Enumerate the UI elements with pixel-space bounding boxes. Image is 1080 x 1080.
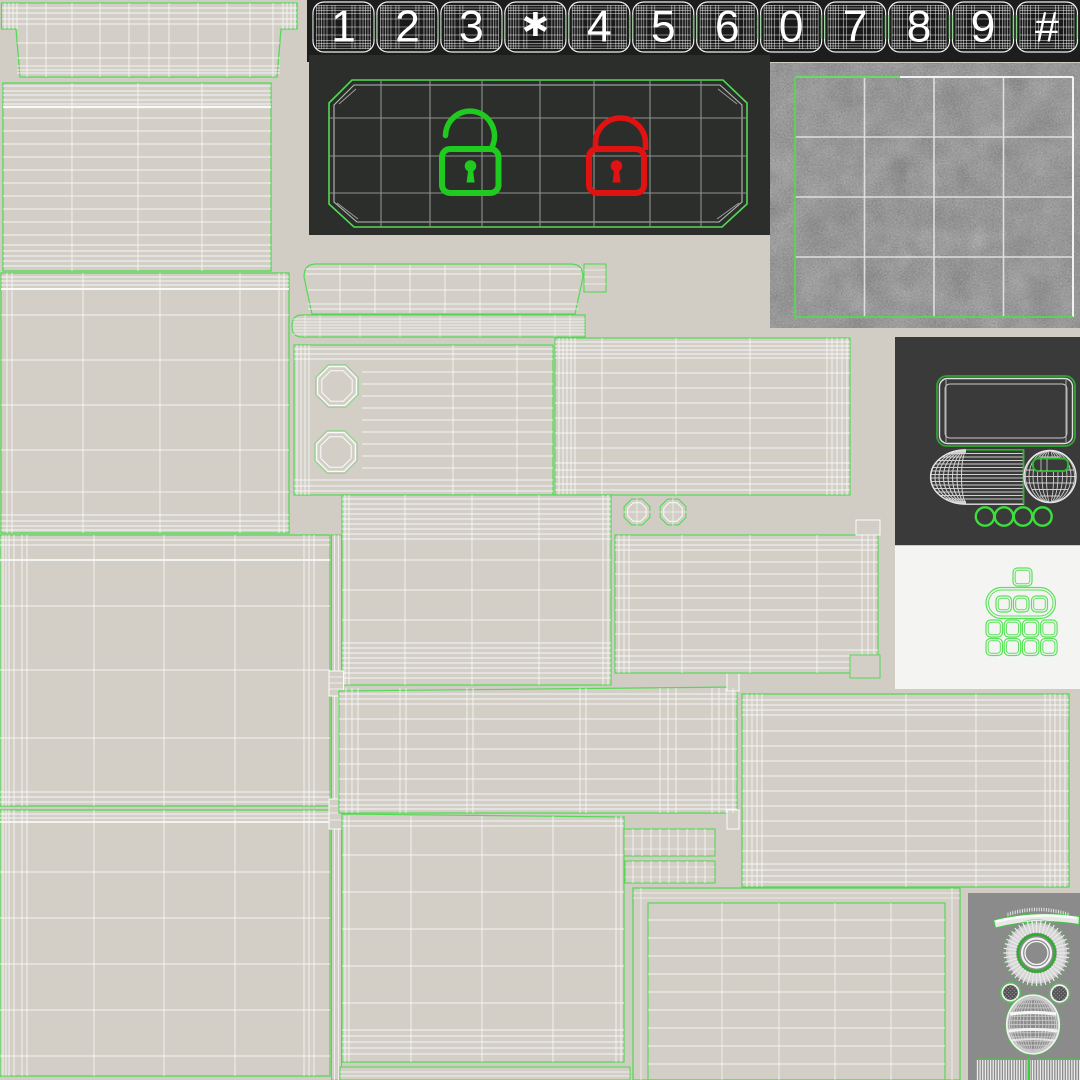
svg-text:9: 9 — [971, 3, 996, 52]
svg-text:0: 0 — [779, 3, 804, 52]
svg-text:5: 5 — [651, 3, 676, 52]
svg-text:7: 7 — [843, 3, 868, 52]
svg-text:#: # — [1035, 4, 1059, 52]
svg-text:8: 8 — [907, 3, 932, 52]
svg-text:3: 3 — [459, 3, 484, 52]
svg-text:4: 4 — [587, 3, 612, 52]
svg-text:6: 6 — [715, 3, 740, 52]
svg-text:2: 2 — [395, 3, 420, 52]
svg-text:1: 1 — [331, 3, 356, 52]
